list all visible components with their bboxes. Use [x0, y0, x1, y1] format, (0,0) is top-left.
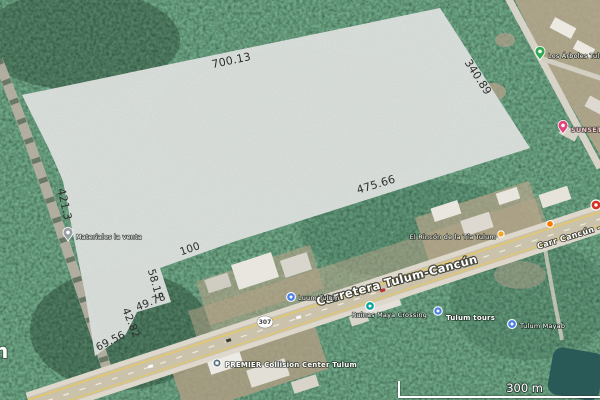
building-teal-roof [546, 346, 600, 400]
place-label-tulum-tours[interactable]: Tulum tours [446, 314, 495, 322]
place-label-tulum-mayab[interactable]: Tulum Mayab [519, 322, 565, 330]
place-label-materiales[interactable]: Materiales la venta [76, 233, 142, 241]
place-label-el-rincon[interactable]: El Rincón de la Tía Tulum [410, 233, 496, 241]
place-marker-premier-collision[interactable] [213, 359, 221, 367]
red-circle-marker[interactable] [591, 200, 600, 210]
place-marker-el-rincon[interactable] [498, 231, 504, 237]
orange-pin-marker[interactable] [547, 221, 554, 228]
satellite-map-canvas[interactable]: 700.13 340.89 475.66 421.3 100 58.15 49.… [0, 0, 600, 400]
place-label-premier-collision[interactable]: PREMIER Collision Center Tulum [225, 361, 357, 369]
place-marker-tulum-tours[interactable] [434, 307, 442, 315]
route-shield: 307 [257, 316, 273, 328]
place-label-los-arboles[interactable]: Los Árboles Tulum [548, 51, 600, 60]
map-svg: 700.13 340.89 475.66 421.3 100 58.15 49.… [0, 0, 600, 400]
edge-label-fragment: n [0, 339, 8, 363]
place-marker-luum[interactable] [287, 293, 296, 302]
route-shield-number: 307 [259, 319, 272, 326]
place-label-sunset-bungalows[interactable]: SUNSET BUNGALOWS [571, 126, 600, 134]
place-label-ruinas-crossing[interactable]: Ruinas Maya Crossing [352, 311, 427, 319]
place-marker-tulum-mayab[interactable] [508, 320, 517, 329]
place-label-luum[interactable]: Luum Tulum [298, 294, 340, 302]
place-marker-ruinas-crossing[interactable] [366, 302, 375, 311]
scale-label: 300 m [506, 381, 543, 395]
